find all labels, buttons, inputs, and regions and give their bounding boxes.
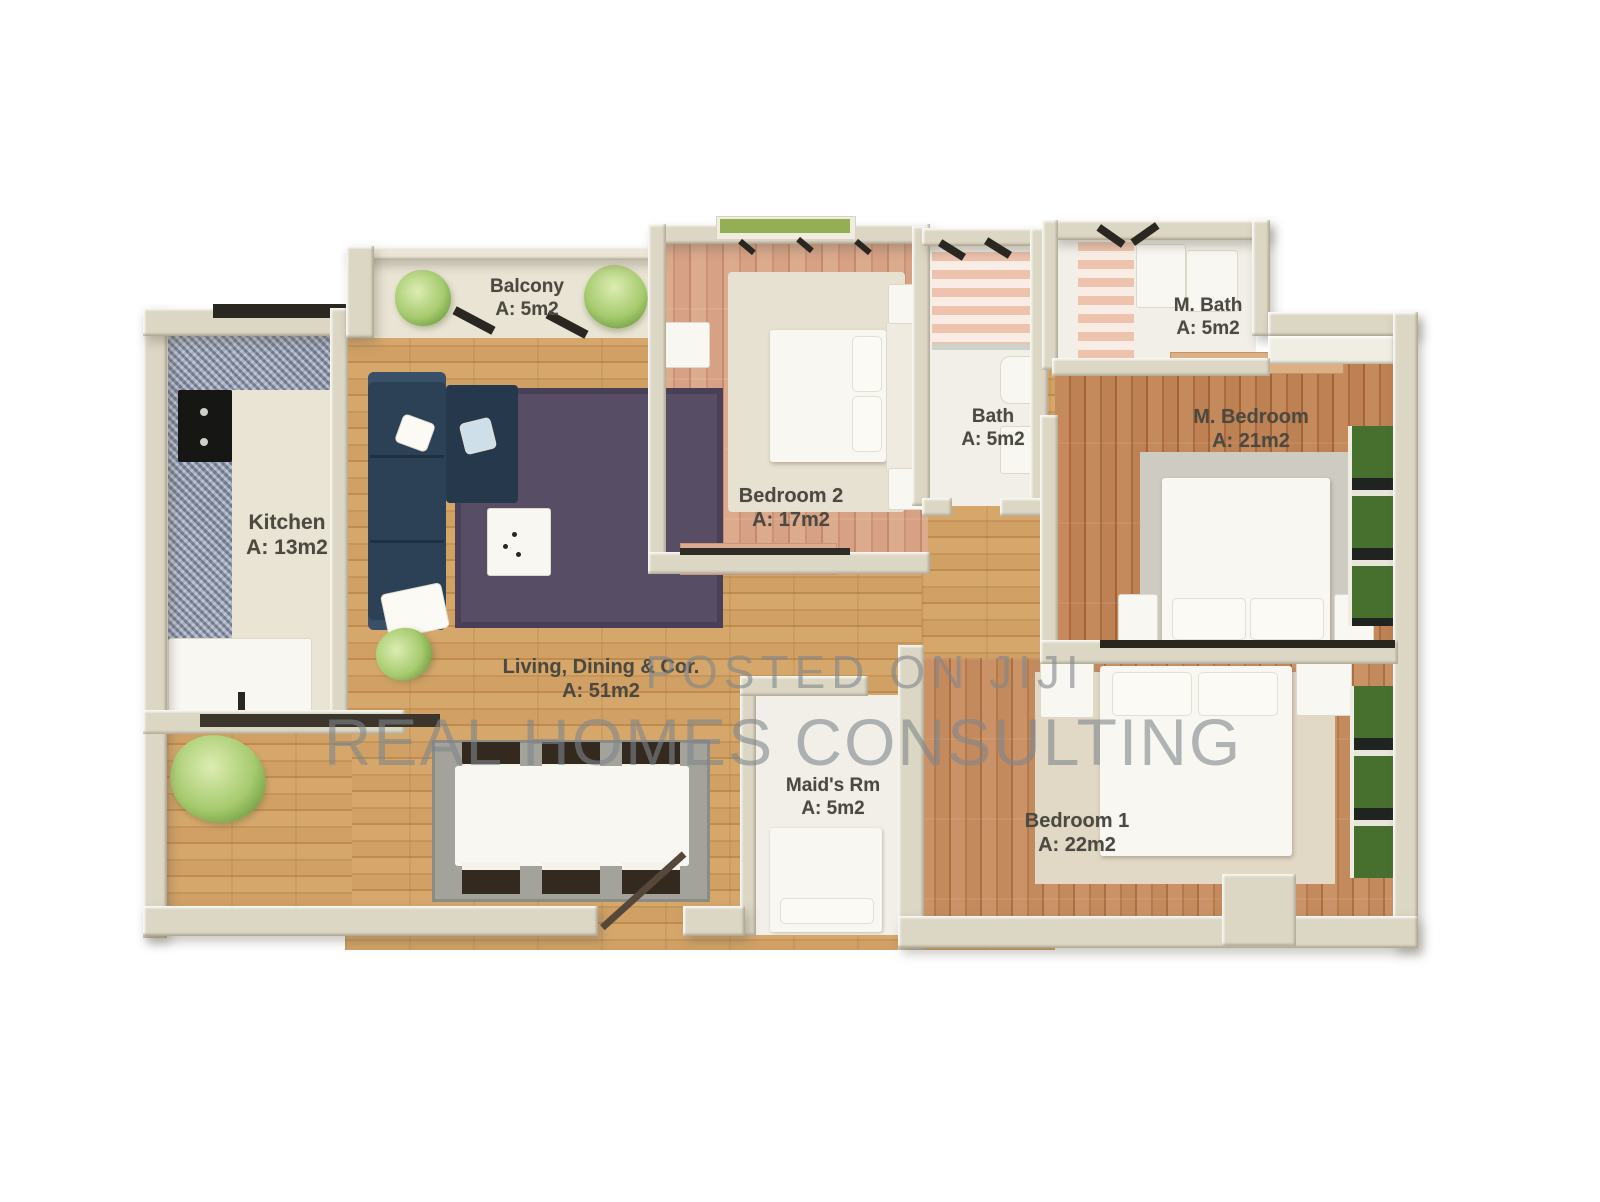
room-name: Kitchen bbox=[246, 510, 328, 535]
wall-outer-left bbox=[143, 308, 167, 938]
wall-balcony-top bbox=[346, 246, 658, 260]
room-label-kitchen: Kitchen A: 13m2 bbox=[246, 510, 328, 560]
stove-knob bbox=[200, 438, 208, 446]
room-label-bedroom1: Bedroom 1 A: 22m2 bbox=[1025, 809, 1129, 857]
stove bbox=[178, 390, 232, 462]
room-area: A: 17m2 bbox=[739, 508, 843, 532]
room-label-maid: Maid's Rm A: 5m2 bbox=[786, 775, 880, 821]
wall-bedroom2-bottom bbox=[648, 552, 930, 574]
wall-bedroom2-right bbox=[912, 226, 930, 506]
cabinet-handle bbox=[238, 692, 245, 712]
wall-mbath-left bbox=[1042, 220, 1058, 370]
coffee-table bbox=[487, 508, 551, 576]
room-area: A: 13m2 bbox=[246, 535, 328, 560]
plant bbox=[395, 270, 451, 326]
mbath-shower bbox=[1078, 242, 1134, 360]
room-name: Balcony bbox=[490, 276, 564, 299]
room-label-mbedroom: M. Bedroom A: 21m2 bbox=[1193, 405, 1309, 453]
wall-mbedroom-left bbox=[1040, 415, 1058, 663]
bedroom2-bottom-line bbox=[680, 548, 850, 555]
wall-bedroom2-left bbox=[648, 224, 666, 572]
bath-shower bbox=[932, 252, 1032, 344]
room-label-balcony: Balcony A: 5m2 bbox=[490, 276, 564, 322]
wall-bottom-left bbox=[143, 906, 598, 936]
wall-outer-right bbox=[1393, 312, 1418, 948]
coffee-table-decor bbox=[503, 544, 508, 549]
room-label-mbath: M. Bath A: 5m2 bbox=[1174, 295, 1243, 341]
room-label-bath: Bath A: 5m2 bbox=[961, 406, 1024, 452]
room-area: A: 5m2 bbox=[961, 429, 1024, 452]
room-name: Bath bbox=[961, 406, 1024, 429]
wall-mbedroom-top bbox=[1052, 358, 1270, 376]
room-area: A: 5m2 bbox=[786, 798, 880, 821]
room-name: Bedroom 2 bbox=[739, 484, 843, 508]
dining-table bbox=[455, 766, 689, 866]
wall-mbath-top bbox=[1052, 220, 1270, 240]
mbedroom-pillow bbox=[1172, 598, 1246, 640]
sofa-cushion-seam bbox=[370, 540, 444, 543]
floor-plan: Balcony A: 5m2 Kitchen A: 13m2 Bedroom 2… bbox=[0, 0, 1600, 1202]
room-name: M. Bedroom bbox=[1193, 405, 1309, 429]
room-area: A: 5m2 bbox=[1174, 318, 1243, 341]
bedroom1-nightstand bbox=[1296, 662, 1352, 716]
dining-chair bbox=[462, 862, 520, 894]
wall-bottom-left2 bbox=[683, 906, 745, 936]
bedroom1-niche bbox=[1222, 874, 1296, 946]
watermark-line2: REAL HOMES CONSULTING bbox=[324, 704, 1242, 780]
wall-bath-bottom bbox=[922, 498, 952, 516]
divider-line bbox=[1100, 640, 1395, 648]
stove-knob bbox=[200, 408, 208, 416]
dining-chair bbox=[542, 862, 600, 894]
maid-pillow bbox=[780, 898, 874, 924]
mbedroom-top-closet bbox=[1268, 336, 1395, 364]
hall-floor bbox=[922, 505, 1058, 660]
sofa-cushion-seam bbox=[370, 455, 444, 458]
bedroom2-closet bbox=[660, 322, 710, 368]
watermark-line1: POSTED ON JIJI bbox=[645, 645, 1084, 699]
wall-bottom-right bbox=[898, 916, 1418, 948]
bath-shower-glass bbox=[932, 344, 1032, 350]
room-area: A: 21m2 bbox=[1193, 429, 1309, 453]
wall-kitchen-right bbox=[330, 308, 348, 714]
mbedroom-pillow bbox=[1250, 598, 1324, 640]
bedroom2-pillow bbox=[852, 336, 882, 392]
room-area: A: 22m2 bbox=[1025, 833, 1129, 857]
coffee-table-decor bbox=[516, 552, 521, 557]
wall-balcony-left bbox=[346, 246, 374, 338]
coffee-table-decor bbox=[512, 532, 517, 537]
kitchen-counter-left bbox=[168, 332, 232, 644]
bedroom2-window bbox=[720, 219, 850, 233]
room-area: A: 5m2 bbox=[490, 299, 564, 322]
room-name: Bedroom 1 bbox=[1025, 809, 1129, 833]
room-label-bedroom2: Bedroom 2 A: 17m2 bbox=[739, 484, 843, 532]
bedroom2-pillow bbox=[852, 396, 882, 452]
room-name: M. Bath bbox=[1174, 295, 1243, 318]
